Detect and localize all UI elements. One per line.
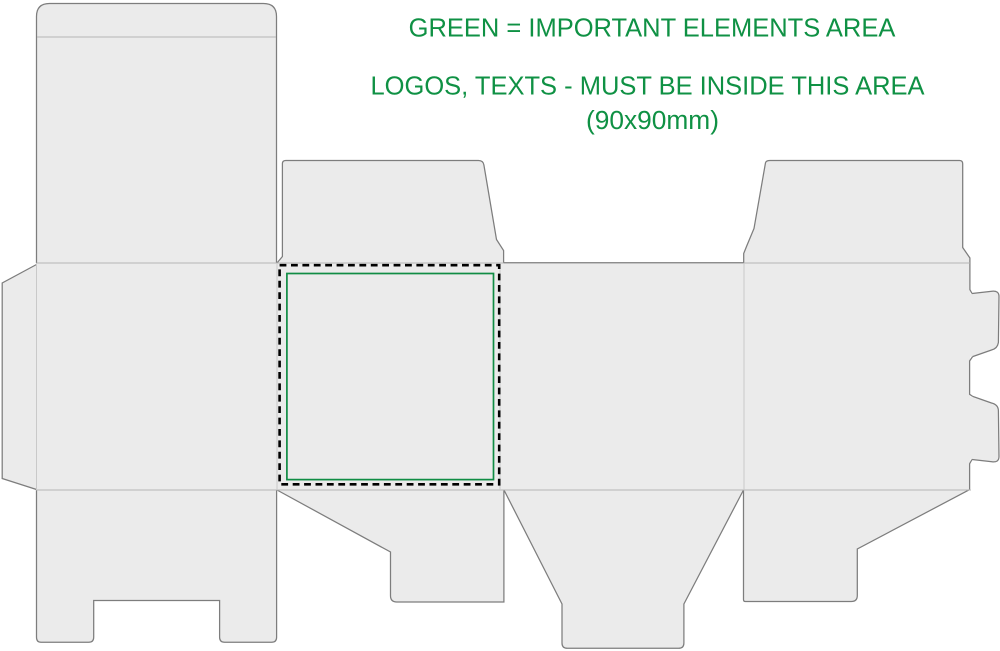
svg-text:GREEN = IMPORTANT ELEMENTS ARE: GREEN = IMPORTANT ELEMENTS AREA — [409, 15, 896, 43]
svg-text:LOGOS, TEXTS - MUST BE INSIDE: LOGOS, TEXTS - MUST BE INSIDE THIS AREA — [370, 73, 924, 101]
svg-text:(90x90mm): (90x90mm) — [586, 105, 719, 135]
